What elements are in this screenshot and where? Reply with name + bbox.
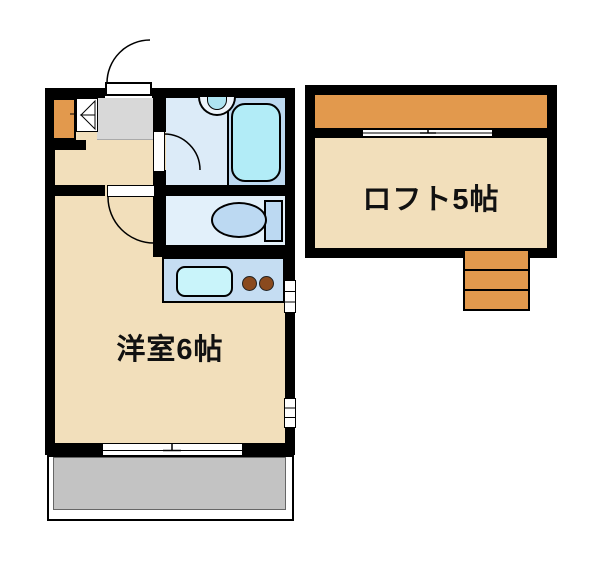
wall bbox=[153, 170, 166, 185]
main-room-label: 洋室6帖 bbox=[55, 326, 285, 368]
shoe-cabinet-icon bbox=[52, 98, 76, 140]
bathtub-icon bbox=[231, 103, 281, 182]
wall bbox=[243, 443, 295, 455]
wall bbox=[45, 443, 102, 455]
stove-burner-icon bbox=[259, 276, 274, 291]
folding-door-icon bbox=[76, 98, 98, 132]
wall bbox=[153, 98, 166, 132]
stairs-icon bbox=[463, 289, 530, 311]
genkan-floor bbox=[97, 98, 153, 140]
loft-upper-ledge bbox=[315, 95, 547, 128]
bathroom-door-icon bbox=[153, 131, 165, 172]
wall bbox=[45, 185, 105, 196]
room-door-icon bbox=[107, 185, 155, 197]
loft-window-icon bbox=[362, 129, 493, 137]
balcony-deck bbox=[53, 457, 286, 510]
stove-burner-icon bbox=[242, 276, 257, 291]
loft-label: ロフト5帖 bbox=[315, 176, 547, 218]
wall bbox=[45, 140, 86, 150]
side-window-icon bbox=[284, 280, 296, 313]
side-window-icon bbox=[284, 398, 296, 428]
stairs-icon bbox=[463, 249, 530, 271]
toilet-icon bbox=[211, 202, 267, 238]
stairs-icon bbox=[463, 269, 530, 291]
wall bbox=[153, 245, 295, 257]
kitchen-sink-icon bbox=[176, 266, 233, 297]
floor-plan: 洋室6帖 ロフト5帖 bbox=[0, 0, 600, 561]
entrance-door-icon bbox=[105, 82, 152, 96]
wall bbox=[153, 185, 295, 196]
wall bbox=[285, 313, 295, 398]
